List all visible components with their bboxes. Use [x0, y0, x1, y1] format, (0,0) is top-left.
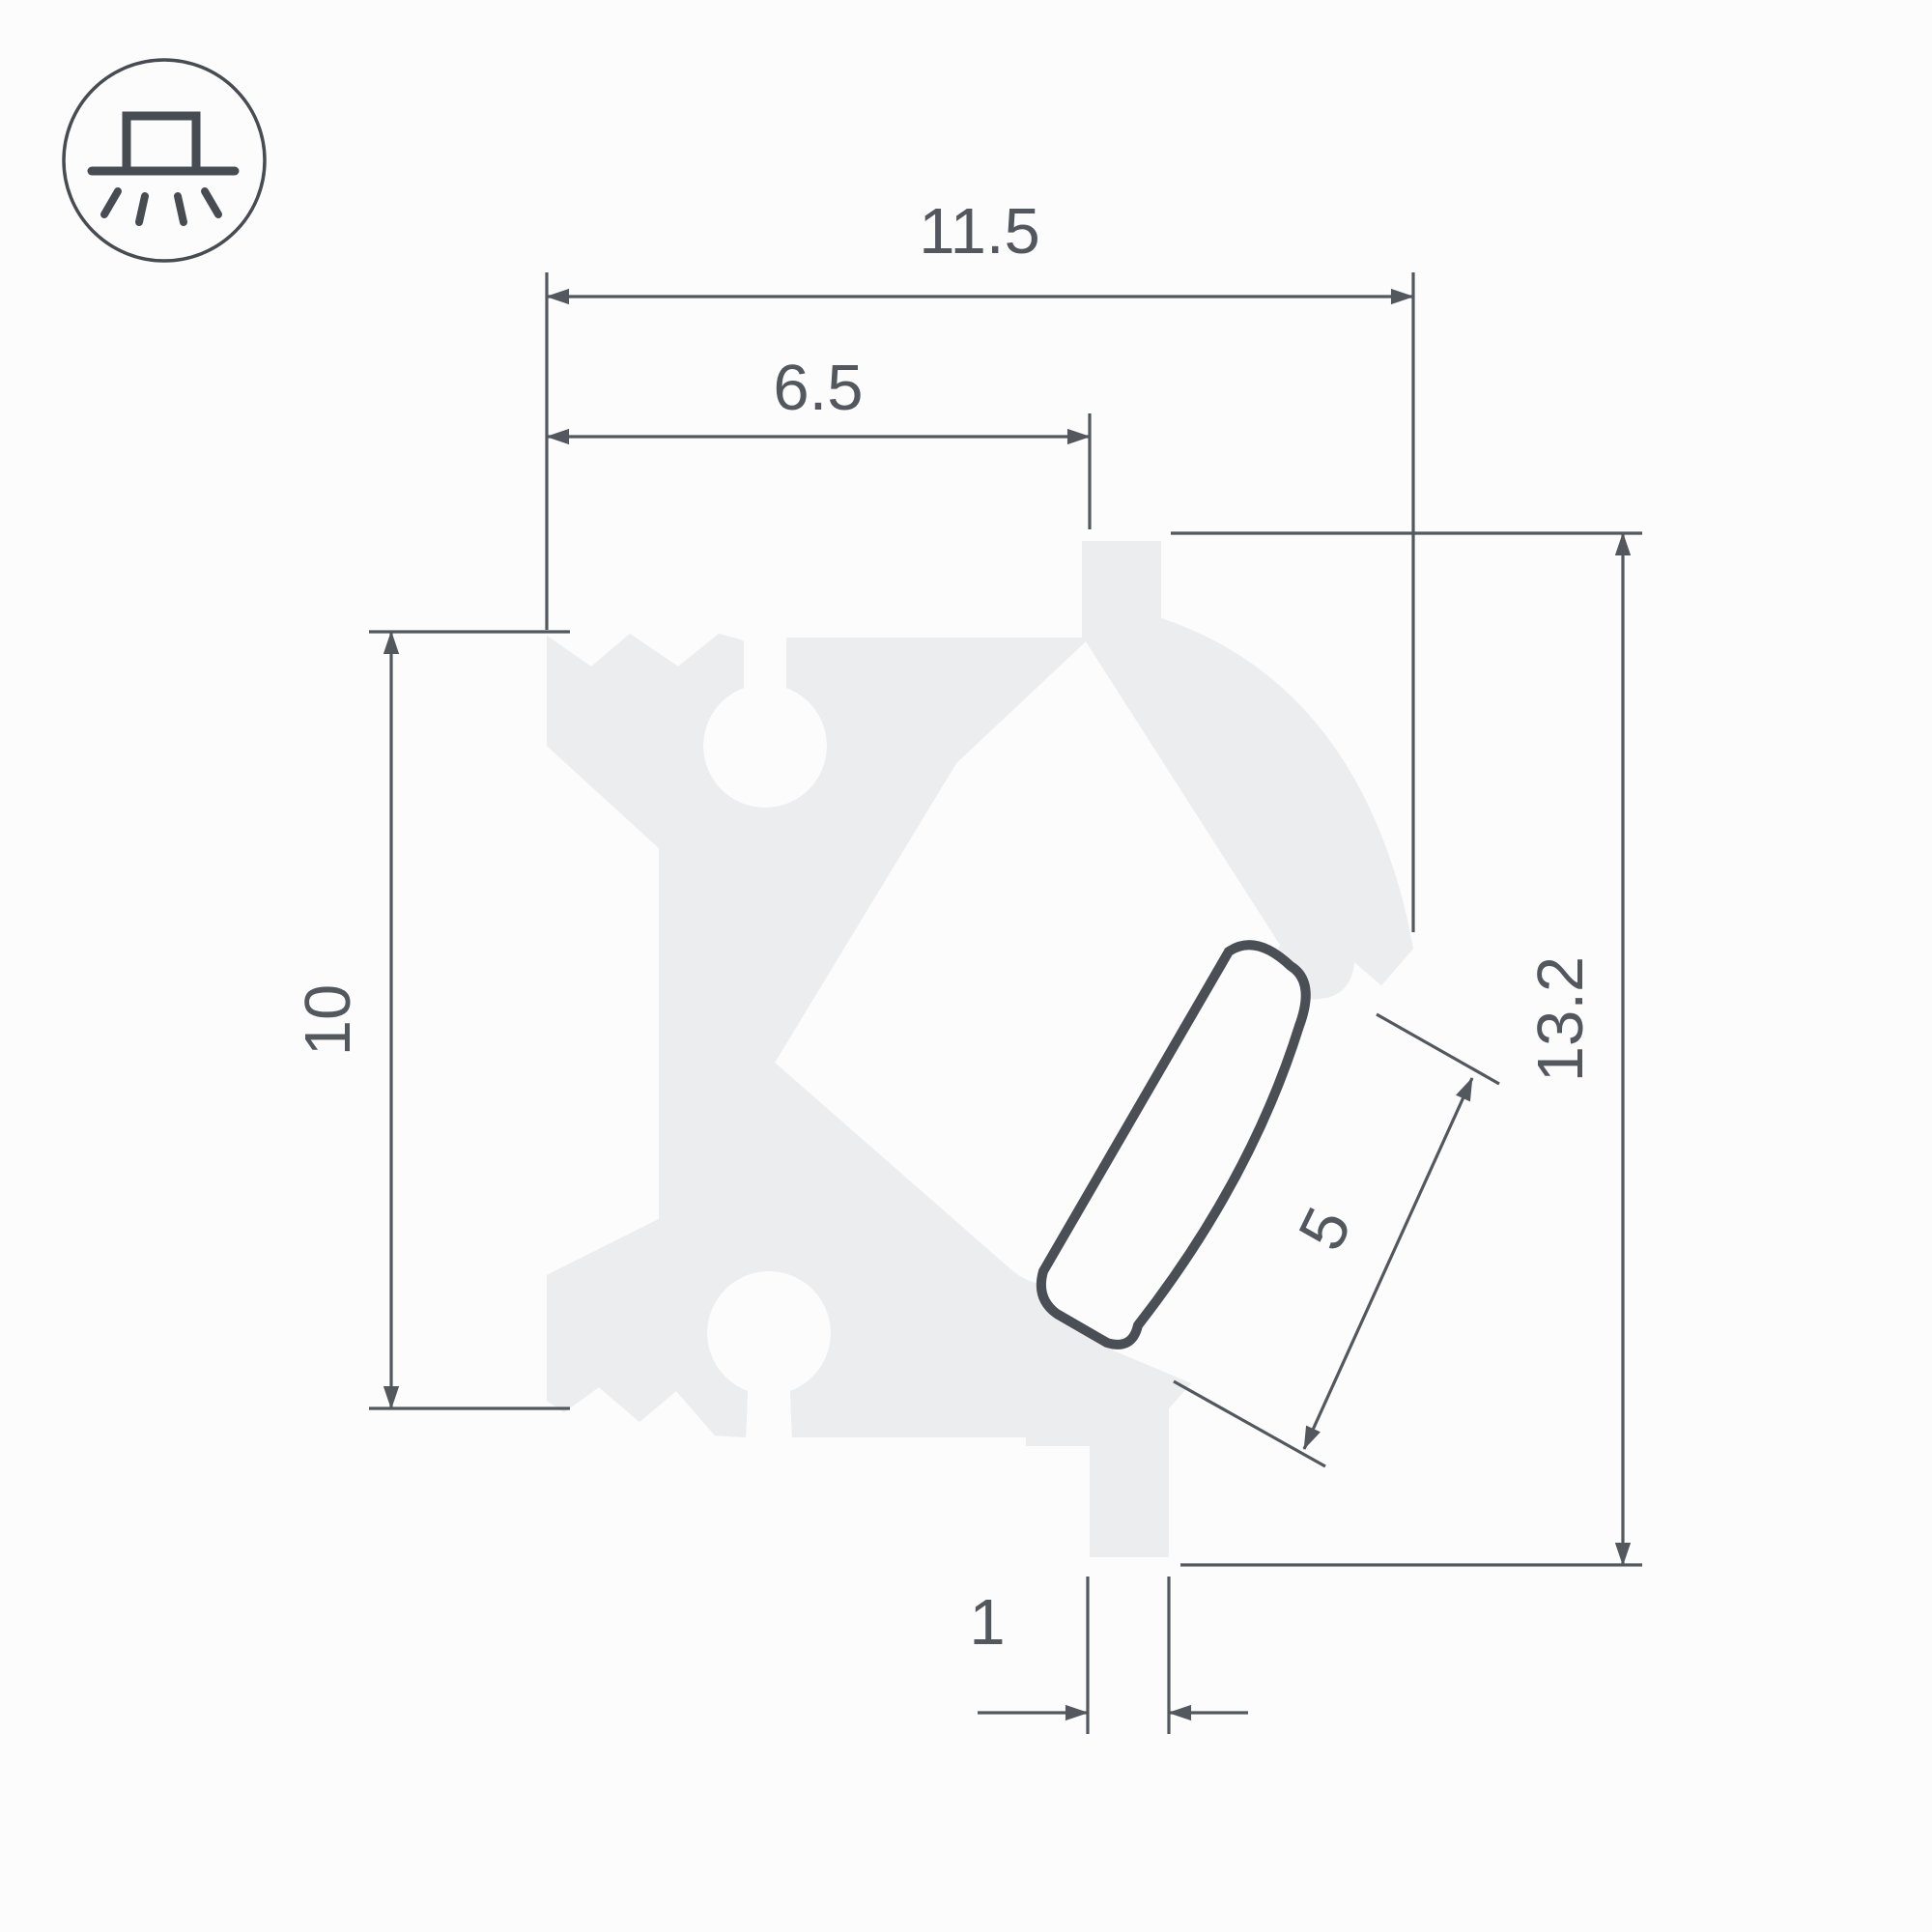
- dim-label-left-height: 10: [292, 984, 364, 1057]
- dim-label-lens-width: 5: [1285, 1197, 1366, 1261]
- lens-diffuser: [1041, 945, 1306, 1345]
- profile-body: [547, 541, 1413, 1557]
- icon-light-rays: [104, 191, 218, 222]
- ext-line-lens-bottom: [1174, 1381, 1325, 1466]
- dim-label-inner-width: 6.5: [773, 352, 863, 424]
- surface-mount-light-icon: [64, 60, 265, 261]
- dim-label-total-width: 11.5: [919, 195, 1039, 268]
- dim-line-lens-width: [1304, 1078, 1472, 1449]
- icon-lamp-body: [127, 116, 196, 171]
- dimension-lines: [369, 272, 1642, 1734]
- dim-label-foot-width: 1: [969, 1586, 1005, 1659]
- technical-drawing-page: 11.5 6.5 10 13.2 5 1: [0, 0, 1932, 1932]
- ext-line-lens-top: [1377, 1014, 1499, 1084]
- icon-circle: [64, 60, 265, 261]
- dim-label-total-height: 13.2: [1524, 956, 1597, 1082]
- profile-drawing-canvas: 11.5 6.5 10 13.2 5 1: [0, 0, 1932, 1932]
